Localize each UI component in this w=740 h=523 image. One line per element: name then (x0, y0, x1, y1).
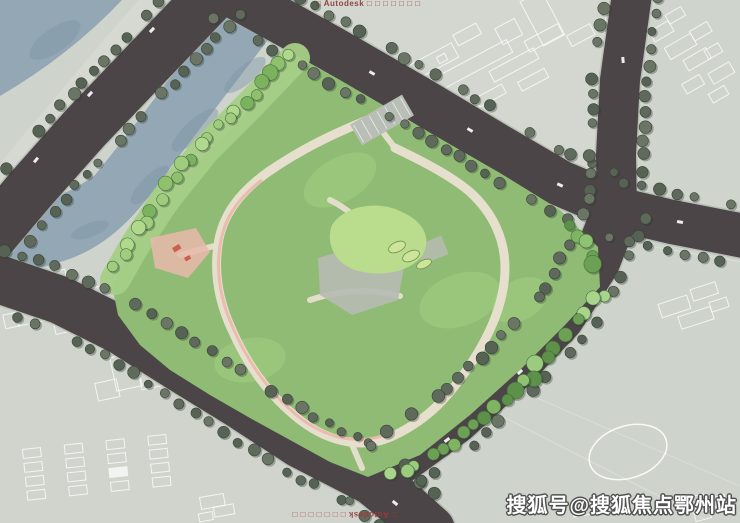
site-plan-svg (0, 0, 740, 523)
site-plan-image: □ Autodesk □ □ □ □ □ □ □ □ Autodesk □ □ … (0, 0, 740, 523)
autodesk-watermark-bottom: □ Autodesk □ □ □ □ □ □ □ (292, 510, 397, 519)
autodesk-watermark-top: □ Autodesk □ □ □ □ □ □ □ (316, 0, 421, 8)
sohu-watermark: 搜狐号@搜狐焦点鄂州站 (506, 489, 737, 518)
